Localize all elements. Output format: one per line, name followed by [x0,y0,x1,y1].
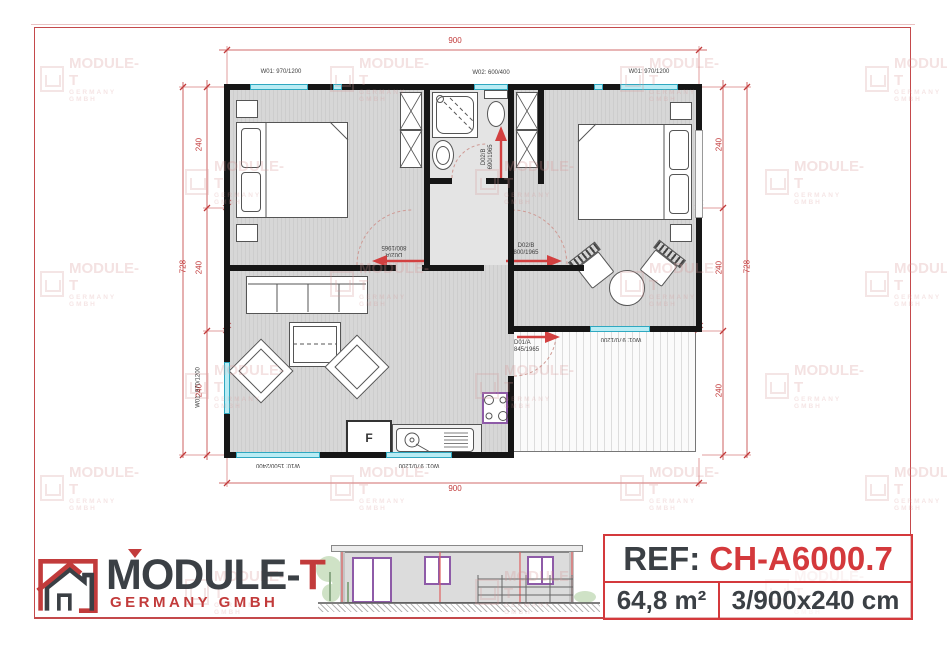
window-label-w01: W01: 970/1200 [609,69,689,76]
pillow [241,172,261,212]
toilet-tank [484,90,508,99]
elevation-corner-trim [340,552,345,603]
logo-brand-main: MODULE- [106,551,300,599]
coffee-table-inner [293,326,337,363]
dim-module: 240 [194,130,203,160]
wall-mid-2 [422,265,444,271]
dim-width-top: 900 [440,36,470,45]
pillow [241,128,261,168]
dim-height-right: 728 [742,252,751,282]
window-label-w01: W01: 970/1200 [379,461,459,468]
nightstand [236,224,258,242]
ref-label: REF: [623,540,700,578]
dining-table-round [609,270,645,306]
window-joint-mark [333,84,342,90]
window-bath-top [474,84,508,90]
dim-module: 240 [714,253,723,283]
wardrobe [516,92,538,130]
window-living-bottom-large [236,452,320,458]
company-logo-wordmark: MODULE-T [106,551,325,600]
wardrobe [400,92,422,130]
elevation-bush [574,591,596,603]
door-label-bedroom2: D02/B 800/1965 [501,243,551,257]
kitchen-sink [396,428,474,452]
wall-mid-4 [508,265,584,271]
door-size: 690/1965 [488,136,495,178]
stove [482,392,508,424]
nightstand [670,102,692,120]
wall-living-east-b [508,376,514,452]
company-logo-icon [36,556,100,616]
drawing-sheet: MODULE-TGERMANY GMBHMODULE-TGERMANY GMBH… [0,0,947,651]
door-label-bedroom1: D02/A 800/1965 [369,243,419,257]
window-label-w10: W10: 1500/2400 [238,461,318,468]
dim-width-bottom: 900 [440,484,470,493]
sheet-outer-line [31,24,915,25]
dim-module: 240 [714,130,723,160]
toilet-bowl [487,101,505,127]
fridge-label: F [346,420,392,456]
elevation-ground-hatch [318,604,600,612]
door-code: D02/A [369,250,419,257]
window-label-w01: W01: 970/1200 [196,347,203,427]
window-label-w01: W01: 970/1200 [241,69,321,76]
door-size: 800/1965 [369,243,419,250]
shower-inner [436,96,474,134]
wall-mid-1 [224,265,396,271]
wall-bedroom2-west [538,90,544,184]
door-size: 800/1965 [501,250,551,257]
window-kitchen-bottom [386,452,452,458]
elevation-window [527,556,554,585]
window-living-left [224,362,230,414]
window-label-w02: W02: 600/400 [456,70,526,77]
wall-mid-3 [444,265,484,271]
pillow [669,130,689,170]
ref-code: CH-A6000.7 [709,540,892,578]
ref-area-cell: 64,8 m² [605,583,720,618]
window-label-w01: W01: 970/1200 [581,335,661,342]
window-right-wall [695,130,703,218]
door-size: 845/1965 [514,347,560,354]
elevation-corner-trim [569,552,574,603]
window-bedroom2-top [620,84,678,90]
wall-bath-west [424,90,430,265]
bath-sink-basin [436,146,450,165]
ref-config-cell: 3/900x240 cm [720,583,911,618]
window-dining-terrace [590,326,650,332]
logo-roof-accent [128,549,142,558]
wall-bath-east [508,90,514,265]
dim-module: 240 [714,376,723,406]
door-code: D01/A [514,340,560,347]
nightstand [670,224,692,242]
company-logo-subtitle: GERMANY GMBH [110,594,278,611]
wardrobe [400,130,422,168]
dim-height-left: 728 [178,252,187,282]
wall-living-east-a [508,271,514,334]
sofa [246,276,368,314]
elevation-glass-door [352,557,392,603]
ref-title-row: REF: CH-A6000.7 [605,536,911,583]
elevation-window [424,556,451,585]
logo-brand-accent: T [300,551,325,599]
nightstand [236,100,258,118]
door-label-entrance: D01/A 845/1965 [514,340,560,354]
pillow [669,174,689,214]
dim-module: 240 [194,253,203,283]
window-bedroom1-top [250,84,308,90]
ref-block: REF: CH-A6000.7 64,8 m² 3/900x240 cm [603,534,913,620]
wardrobe [516,130,538,168]
elevation-roof [331,545,583,552]
door-label-bath: D02/B 690/1965 [481,136,495,178]
door-code: D02/B [501,243,551,250]
door-code: D02/B [481,136,488,178]
window-joint-mark [594,84,603,90]
